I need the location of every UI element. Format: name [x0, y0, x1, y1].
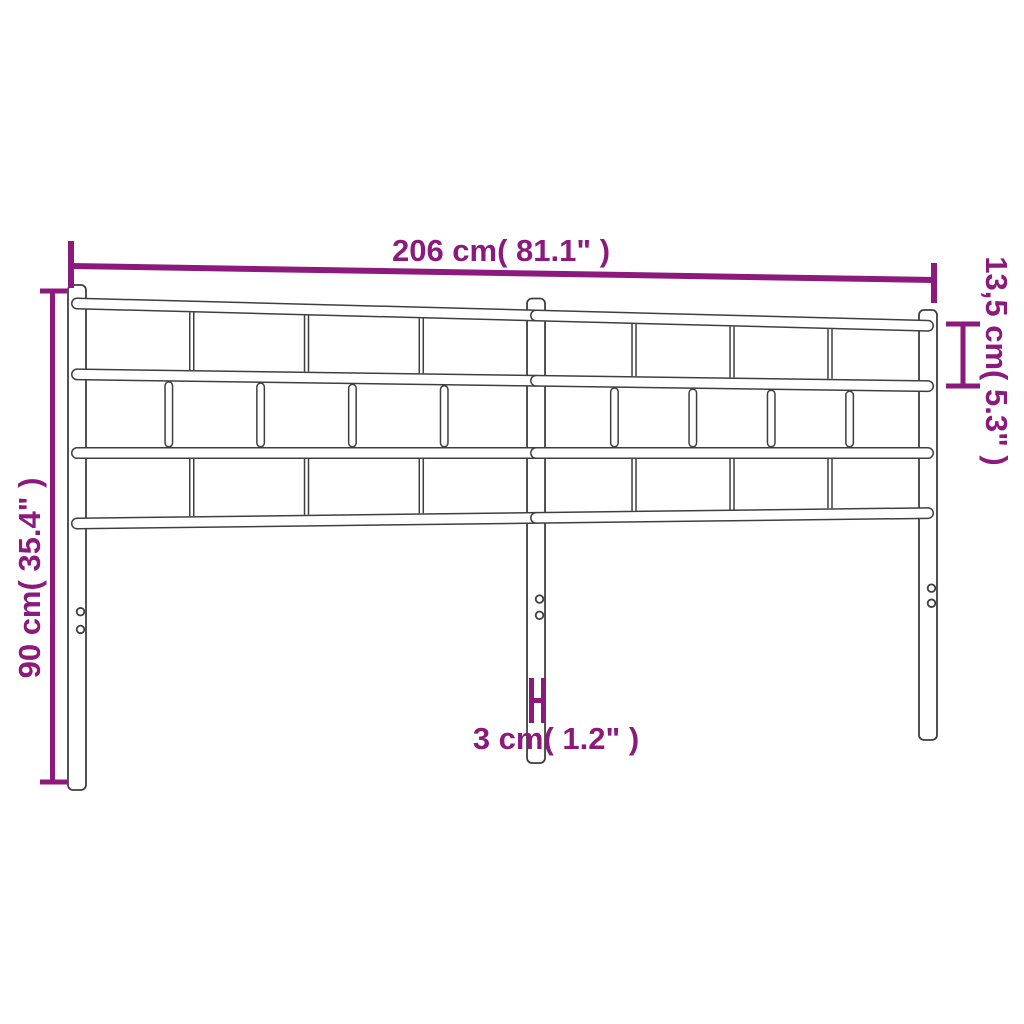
screw-hole — [928, 584, 936, 592]
rail-4-seg-2-fill — [536, 513, 928, 518]
height-dimension-label: 90 cm( 35.4" ) — [12, 478, 47, 679]
post-width-dimension: 3 cm( 1.2" ) — [473, 678, 639, 756]
screw-hole — [536, 595, 544, 603]
top-section-dimension-label: 13,5 cm( 5.3" ) — [979, 256, 1014, 465]
screw-hole — [928, 599, 936, 607]
width-dimension-label: 206 cm( 81.1" ) — [392, 233, 610, 268]
height-dimension: 90 cm( 35.4" ) — [12, 291, 67, 782]
screw-hole — [77, 626, 85, 634]
screw-hole — [536, 612, 544, 620]
width-dimension-line — [71, 266, 934, 280]
product-dimension-diagram: 206 cm( 81.1" ) 90 cm( 35.4" ) 13,5 cm( … — [0, 0, 1024, 1024]
top-section-dimension: 13,5 cm( 5.3" ) — [946, 256, 1014, 465]
post-right — [919, 310, 937, 740]
post-width-dimension-label: 3 cm( 1.2" ) — [473, 721, 639, 756]
width-dimension: 206 cm( 81.1" ) — [71, 233, 934, 303]
post-left — [68, 285, 86, 790]
headboard-dimension-drawing: 206 cm( 81.1" ) 90 cm( 35.4" ) 13,5 cm( … — [0, 0, 1024, 1024]
headboard-drawing — [68, 285, 937, 790]
rail-2-seg-2-fill — [536, 381, 928, 386]
screw-hole — [77, 608, 85, 616]
rail-1-seg-2-fill — [536, 315, 928, 325]
rail-2-seg-1-fill — [77, 374, 536, 380]
rail-1-seg-1-fill — [77, 303, 536, 315]
rail-4-seg-1-fill — [77, 518, 536, 524]
